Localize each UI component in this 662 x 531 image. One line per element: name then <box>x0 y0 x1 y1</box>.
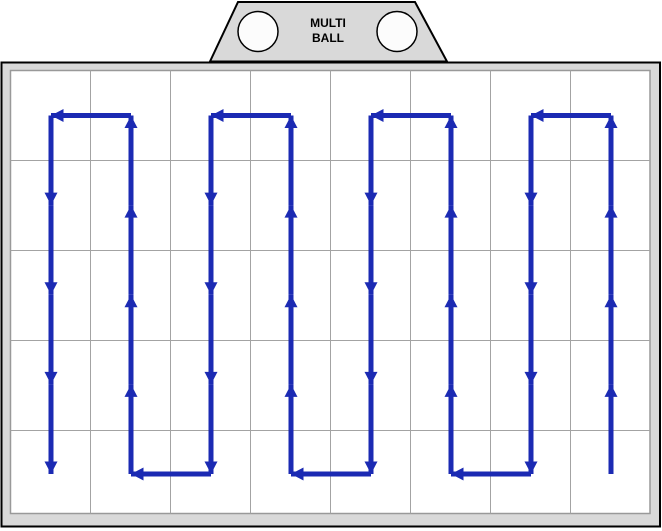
ball-port-circle-2 <box>377 12 417 52</box>
hopper-label-line2: BALL <box>312 31 344 45</box>
hopper-label-line1: MULTI <box>310 16 346 30</box>
multi-ball-diagram-page: MULTI BALL <box>0 0 662 531</box>
ball-port-circle-1 <box>238 12 278 52</box>
multi-ball-path-diagram: MULTI BALL <box>0 0 662 531</box>
hopper-label: MULTI BALL <box>310 16 346 45</box>
